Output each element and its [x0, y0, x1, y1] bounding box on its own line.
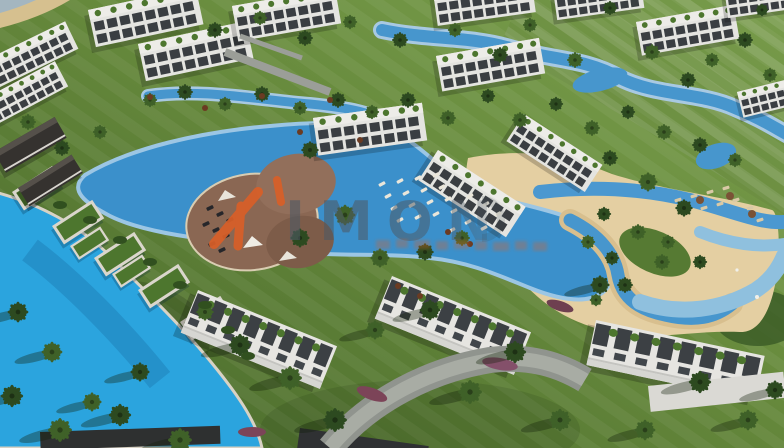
palm-tree	[392, 32, 408, 48]
palm-tree	[692, 137, 708, 153]
palm-tree	[109, 404, 131, 426]
palm-tree	[130, 362, 149, 381]
palm-tree	[400, 92, 416, 108]
beach-umbrella	[696, 196, 704, 204]
palm-tree	[581, 235, 595, 249]
palm-tree	[602, 150, 618, 166]
palm-tree	[54, 140, 70, 156]
hedge-bush	[83, 216, 97, 224]
palm-tree	[177, 84, 193, 100]
palm-tree	[481, 89, 495, 103]
palm-tree	[42, 342, 63, 363]
hedge-bush	[241, 352, 255, 360]
palm-tree	[603, 1, 617, 15]
palm-tree	[693, 255, 707, 269]
red-shrub	[357, 137, 363, 143]
red-shrub	[202, 105, 208, 111]
palm-tree	[549, 409, 571, 431]
hedge-bush	[173, 281, 187, 289]
red-shrub	[395, 283, 401, 289]
palm-tree	[448, 23, 462, 37]
resort-render: IMON	[0, 0, 784, 448]
palm-tree	[584, 120, 600, 136]
palm-tree	[705, 53, 719, 67]
red-shrub	[147, 94, 153, 100]
palm-tree	[278, 366, 302, 390]
palm-tree	[253, 11, 267, 25]
palm-tree	[207, 22, 223, 38]
palm-tree	[680, 72, 696, 88]
palm-tree	[675, 199, 693, 217]
palm-tree	[656, 124, 672, 140]
flower-bed	[238, 427, 266, 437]
palm-tree	[323, 408, 347, 432]
palm-tree	[365, 105, 379, 119]
palm-tree	[93, 125, 107, 139]
palm-tree	[635, 420, 656, 441]
palm-tree	[440, 110, 456, 126]
palm-tree	[737, 32, 753, 48]
palm-tree	[82, 392, 101, 411]
hedge-bush	[221, 326, 235, 334]
palm-tree	[765, 380, 784, 399]
palm-tree	[661, 235, 675, 249]
palm-tree	[48, 418, 72, 442]
palm-tree	[301, 141, 319, 159]
red-shrub	[297, 129, 303, 135]
palm-tree	[297, 30, 313, 46]
palm-tree	[420, 300, 441, 321]
palm-tree	[365, 320, 384, 339]
palm-tree	[492, 47, 508, 63]
red-shrub	[259, 93, 265, 99]
palm-tree	[597, 207, 611, 221]
palm-tree	[654, 254, 670, 270]
palm-tree	[8, 302, 29, 323]
palm-tree	[689, 371, 711, 393]
palm-tree	[590, 294, 603, 307]
red-shrub	[417, 293, 423, 299]
palm-tree	[567, 52, 583, 68]
palm-tree	[458, 380, 482, 404]
screenshot-root: IMON	[0, 0, 784, 448]
watermark-text: IMON	[285, 190, 506, 253]
palm-tree	[621, 105, 635, 119]
red-shrub	[327, 97, 333, 103]
palm-tree	[504, 341, 526, 363]
palm-tree	[644, 44, 660, 60]
beach-umbrella	[748, 210, 756, 218]
hedge-bush	[53, 201, 67, 209]
palm-tree	[549, 97, 563, 111]
hedge-bush	[198, 301, 212, 309]
hedge-bush	[113, 236, 127, 244]
palm-tree	[756, 4, 769, 17]
palm-tree	[738, 410, 759, 431]
palm-tree	[728, 153, 742, 167]
palm-tree	[512, 112, 528, 128]
palm-tree	[293, 101, 307, 115]
palm-tree	[523, 18, 537, 32]
palm-tree	[605, 251, 619, 265]
palm-tree	[617, 277, 633, 293]
palm-tree	[630, 224, 646, 240]
boat-speck	[735, 268, 738, 271]
boat-speck	[755, 295, 759, 299]
palm-tree	[1, 385, 23, 407]
palm-tree	[763, 68, 777, 82]
hedge-bush	[143, 258, 157, 266]
palm-tree	[343, 15, 357, 29]
palm-tree	[638, 172, 657, 191]
palm-tree	[218, 97, 232, 111]
palm-tree	[20, 114, 36, 130]
beach-umbrella	[726, 192, 734, 200]
palm-tree	[590, 275, 609, 294]
